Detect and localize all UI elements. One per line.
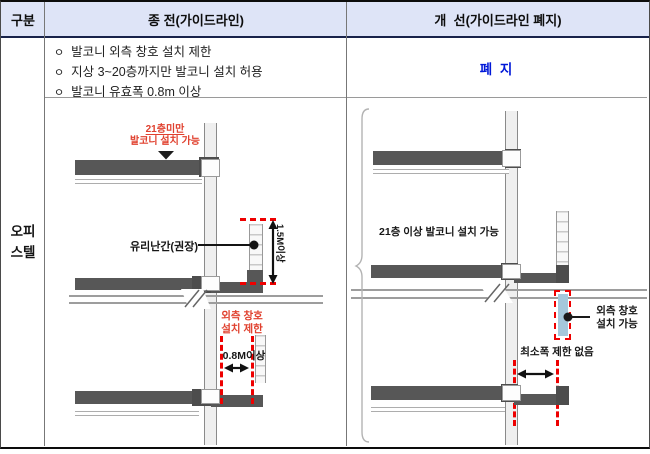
after-diagram: 21층 이상 발코니 설치 가능 외측 창호 설치 가능 최소폭 제한 없음 [347, 98, 649, 448]
arrowhead-right-icon [240, 364, 249, 373]
floor-limit-note-line1: 21층미만 [100, 124, 230, 136]
balcony-railing [556, 211, 569, 272]
floor-slab [371, 386, 501, 400]
header-before: 종 전(가이드라인) [45, 2, 347, 36]
height-dimension-label: 1.5M이상 [274, 224, 288, 263]
arrowhead-left-icon [224, 364, 233, 373]
red-dashed-line-bottom [240, 282, 276, 285]
before-bullet-list: ㅇ발코니 외측 창호 설치 제한 ㅇ지상 3~20층까지만 발코니 설치 허용 … [54, 43, 342, 103]
red-dashed-line-top [240, 218, 276, 221]
glass-railing-label: 유리난간(권장) [83, 238, 198, 254]
section-break-line [351, 289, 647, 291]
glass-railing [249, 224, 263, 272]
column-joint [502, 385, 521, 401]
column-joint [201, 159, 220, 177]
exterior-window [558, 294, 568, 336]
floor-limit-note-line2: 발코니 설치 가능 [100, 136, 230, 148]
floor-slab [75, 391, 192, 404]
column-divider-2 [346, 2, 347, 446]
row-label-line2: 스텔 [11, 242, 36, 263]
floor-range-brace [356, 109, 369, 442]
section-break-mark [485, 284, 500, 302]
window-allow-note: 외측 창호 설치 가능 [588, 305, 646, 330]
pointer-triangle-icon [158, 151, 174, 160]
parapet-upstand [556, 386, 569, 405]
floor-slab [373, 151, 505, 165]
arrowhead-left-icon [517, 370, 526, 379]
after-status-text: 폐 지 [347, 38, 647, 97]
column-divider-1 [44, 2, 45, 446]
column-joint [201, 389, 220, 404]
ceiling-strip [373, 169, 509, 174]
column-joint [502, 150, 521, 167]
bullet-item: ㅇ지상 3~20층까지만 발코니 설치 허용 [54, 63, 342, 83]
bullet-text: 지상 3~20층까지만 발코니 설치 허용 [71, 65, 263, 79]
floor-allow-note: 21층 이상 발코니 설치 가능 [369, 226, 509, 239]
regulation-comparison-table: 구분 종 전(가이드라인) 개 선(가이드라인 폐지) 오피 스텔 ㅇ발코니 외… [0, 0, 650, 454]
bullet-marker: ㅇ [54, 47, 64, 59]
arrowhead-right-icon [545, 370, 554, 379]
header-category: 구분 [1, 2, 45, 36]
column-joint [201, 276, 220, 291]
bullet-text: 발코니 외측 창호 설치 제한 [71, 45, 211, 59]
row-label-officetel: 오피 스텔 [1, 38, 45, 446]
window-restriction-line2: 설치 제한 [207, 323, 277, 336]
table-header-row: 구분 종 전(가이드라인) 개 선(가이드라인 폐지) [1, 2, 649, 38]
floor-slab [75, 160, 199, 175]
window-allow-line2: 설치 가능 [588, 318, 646, 331]
window-restriction-note: 외측 창호 설치 제한 [207, 310, 277, 335]
floor-slab [371, 265, 501, 278]
ceiling-strip [75, 411, 199, 416]
table-frame: 구분 종 전(가이드라인) 개 선(가이드라인 폐지) 오피 스텔 ㅇ발코니 외… [0, 0, 650, 449]
floor-slab [75, 278, 192, 290]
before-diagram: 21층미만 발코니 설치 가능 유리난간(권장) 1.5M이상 외측 창호 설치… [45, 98, 347, 448]
section-break-line [69, 295, 323, 297]
ceiling-strip [75, 179, 202, 184]
window-restriction-line1: 외측 창호 [207, 310, 277, 323]
header-after: 개 선(가이드라인 폐지) [347, 2, 649, 36]
bullet-marker: ㅇ [54, 67, 64, 79]
red-dashed-line-left [220, 336, 223, 404]
row-label-line1: 오피 [11, 221, 36, 242]
floor-limit-note: 21층미만 발코니 설치 가능 [100, 124, 230, 147]
width-dimension-label: 0.8M이상 [210, 350, 278, 363]
window-allow-line1: 외측 창호 [588, 305, 646, 318]
width-dimension-label: 최소폭 제한 없음 [505, 346, 609, 359]
section-break-line [69, 302, 323, 304]
bullet-item: ㅇ발코니 외측 창호 설치 제한 [54, 43, 342, 63]
column-joint [502, 264, 521, 279]
section-break-line [351, 297, 647, 299]
red-dashed-line-right [251, 336, 254, 404]
parapet-upstand [556, 265, 569, 283]
ceiling-strip [371, 407, 505, 412]
